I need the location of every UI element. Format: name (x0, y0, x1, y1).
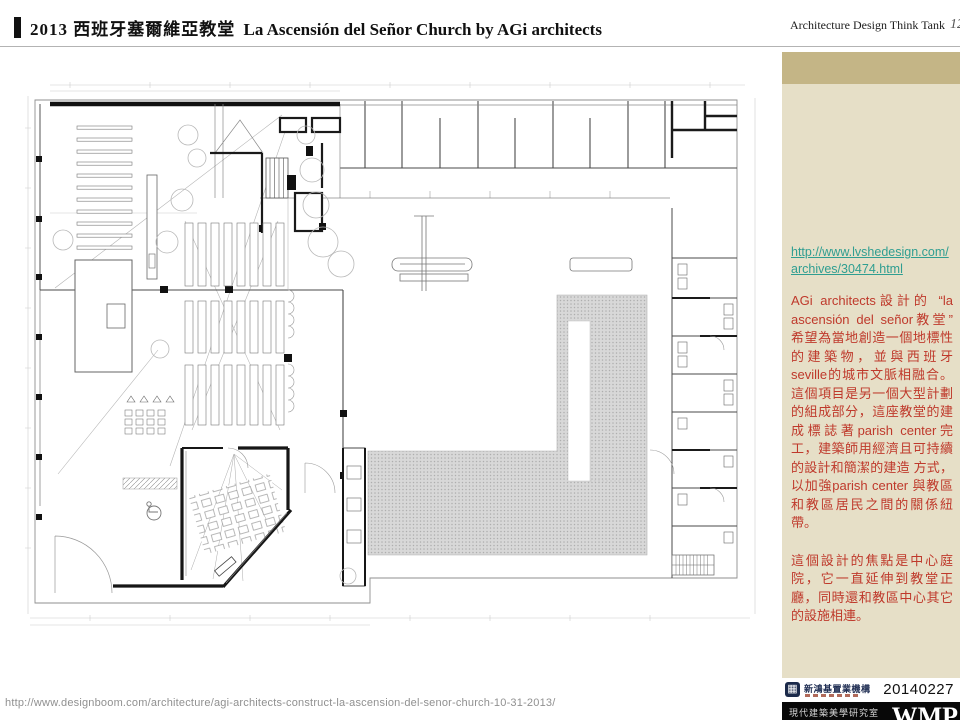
weekday-chapel (113, 448, 291, 587)
north-wing-rooms (260, 101, 737, 198)
publisher-logo-icon: ▦ (785, 682, 800, 697)
planters (392, 216, 632, 291)
sidebar-top-band (782, 52, 960, 84)
slide-title-block: 2013 西班牙塞爾維亞教堂 La Ascensión del Señor Ch… (14, 15, 602, 40)
description-paragraph-1: AGi architects設計的 “la ascensión del seño… (791, 292, 953, 533)
side-pews (77, 126, 132, 249)
footer-black-bar: 現代建築美學研究室 WMP (782, 702, 960, 720)
ramp-hatch (123, 478, 177, 489)
page-number: 12 (950, 17, 960, 33)
publisher-logo-subtext-bars (805, 694, 861, 697)
source-link[interactable]: http://www.lvshedesign.com/archives/3047… (791, 244, 953, 278)
sidebar: http://www.lvshedesign.com/archives/3047… (782, 52, 960, 678)
organ-element (147, 175, 157, 279)
wmp-watermark: WMP (892, 703, 958, 720)
page-title: 2013 西班牙塞爾維亞教堂 La Ascensión del Señor Ch… (30, 15, 602, 40)
floor-plan-panel (10, 58, 772, 690)
studio-label: 現代建築美學研究室 (789, 706, 879, 719)
title-marker-bar (14, 17, 21, 38)
header-divider (0, 46, 960, 47)
page-title-chinese: 2013 西班牙塞爾維亞教堂 (30, 20, 235, 39)
page-title-latin: La Ascensión del Señor Church by AGi arc… (244, 20, 602, 39)
chapel-east-strip (343, 448, 365, 586)
stair-southeast (672, 555, 714, 575)
side-chapel-room (75, 260, 132, 372)
designboom-source-url: http://www.designboom.com/architecture/a… (5, 697, 555, 709)
slide-date: 20140227 (883, 681, 954, 698)
sidebar-content: http://www.lvshedesign.com/archives/3047… (791, 244, 953, 645)
sacristy-furniture (125, 396, 174, 434)
east-service-strip (672, 208, 737, 578)
publisher-strip: ▦ 新鴻基置業機構 20140227 (782, 678, 960, 702)
wheelchair-symbol (147, 502, 161, 520)
floor-plan-drawing (10, 58, 772, 690)
courtyard-hatched-area (368, 295, 647, 555)
stair-core (266, 158, 288, 198)
brand-name: Architecture Design Think Tank (790, 18, 945, 33)
brand-block: Architecture Design Think Tank 12 (784, 12, 960, 38)
description-paragraph-2: 這個設計的焦點是中心庭院，它一直延伸到教堂正廳，同時還和教區中心其它的設施相連。 (791, 552, 953, 626)
nave-pews (185, 223, 284, 425)
